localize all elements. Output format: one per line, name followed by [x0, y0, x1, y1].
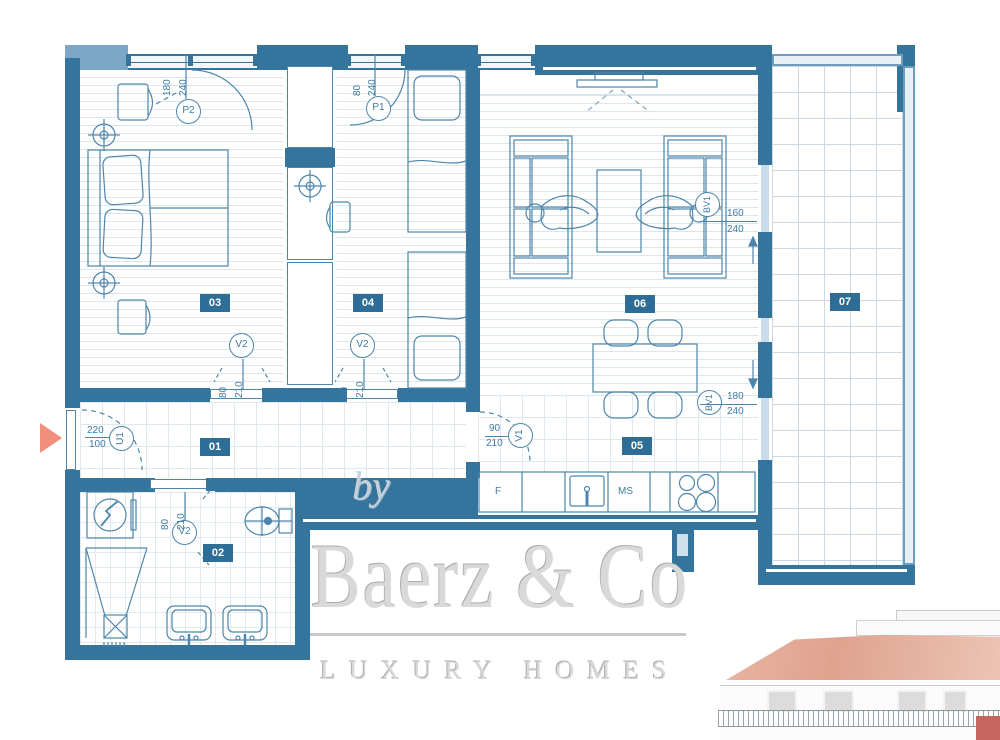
room-badge-06: 06 — [625, 295, 655, 313]
watermark-by: by — [352, 462, 390, 509]
room-badge-03: 03 — [200, 294, 230, 312]
dim-bv1b-h: 240 — [727, 406, 744, 418]
dining-chair — [648, 320, 682, 346]
tv-board — [577, 80, 657, 87]
dim-p1-w: 80 — [352, 85, 364, 96]
burner — [680, 476, 695, 491]
door-tag-v2-bed04: V2 — [350, 333, 375, 358]
building-red-wall — [976, 716, 1000, 740]
building-window — [897, 690, 927, 712]
chair — [118, 300, 146, 334]
dim-v1-bar — [485, 436, 509, 437]
tv-view-lines — [586, 90, 650, 112]
burner — [697, 493, 716, 512]
blanket-fold — [408, 161, 466, 163]
window-p2-swing — [192, 70, 252, 130]
ceiling-light-icon — [88, 119, 120, 151]
room-badge-07: 07 — [830, 293, 860, 311]
dim-v2a-w: 80 — [218, 387, 230, 398]
room-badge-01: 01 — [200, 438, 230, 456]
door-tag-bv1-living: BV1 — [695, 192, 720, 217]
dim-bv1a-w: 160 — [727, 208, 744, 220]
pillow — [103, 209, 143, 259]
dim-v2c-h: 210 — [176, 513, 188, 530]
dim-v2a-h: 210 — [234, 381, 246, 398]
blanket-fold — [408, 317, 466, 319]
washer-zigzag — [101, 501, 118, 526]
door-tag-u1-entrance: U1 — [109, 426, 134, 451]
dining-table — [593, 344, 697, 392]
dim-p1-h: 240 — [367, 79, 379, 96]
dim-v1-w: 90 — [489, 423, 500, 435]
building-balcony-railing — [718, 710, 1000, 727]
bidet — [245, 506, 292, 536]
room-badge-04: 04 — [353, 294, 383, 312]
ceiling-light-icon — [294, 170, 326, 202]
bed-blanket-lines — [149, 150, 228, 266]
kitchen-counter-art — [479, 472, 755, 512]
single-bed-1 — [408, 70, 466, 232]
coffee-table — [597, 170, 641, 252]
dining-chair — [604, 320, 638, 346]
sink-drain — [585, 487, 590, 492]
person-left — [526, 196, 598, 230]
window-tag-p2: P2 — [176, 99, 201, 124]
building-back-ridge-2 — [856, 620, 1000, 636]
building-roof — [726, 634, 1000, 680]
pillow — [414, 336, 460, 380]
v2b-dash — [335, 368, 391, 382]
dim-bv1b-bar — [700, 404, 757, 405]
bv1b-arrow-head — [749, 379, 757, 388]
dim-p2-h: 240 — [178, 79, 190, 96]
room-badge-05: 05 — [622, 437, 652, 455]
dresser — [118, 84, 148, 120]
dim-u1-bar — [85, 437, 110, 438]
bv1a-arrow-head — [749, 237, 757, 246]
pillow — [102, 155, 143, 206]
building-window — [767, 690, 797, 712]
dim-v2b-w: 80 — [339, 387, 351, 398]
door-tag-v1-kitchen: V1 — [508, 423, 533, 448]
bedroom-04-furniture — [327, 70, 467, 388]
shower — [86, 548, 147, 647]
burner — [679, 494, 696, 511]
building-elevation — [718, 598, 1000, 740]
dim-u1-h: 100 — [89, 439, 106, 451]
dining-chair — [648, 392, 682, 418]
dim-p2-w: 180 — [162, 79, 174, 96]
ms-unit-label: MS — [618, 486, 633, 497]
building-window — [943, 690, 967, 712]
living-room-furniture — [480, 73, 758, 418]
dim-v2c-w: 80 — [160, 519, 172, 530]
floor-plan-page: 01 02 03 04 05 06 07 P2 P1 V2 V2 V2 V1 U… — [0, 0, 1000, 740]
room-badge-02: 02 — [203, 544, 233, 562]
window-tag-p1: P1 — [366, 96, 391, 121]
entrance-arrow-icon — [40, 423, 62, 453]
tv-screen — [595, 73, 643, 80]
door-tag-v2-bed03: V2 — [229, 333, 254, 358]
watermark-tagline: LUXURY HOMES — [290, 656, 710, 686]
dim-v1-h: 210 — [486, 438, 503, 450]
dining-chair — [604, 392, 638, 418]
dim-bv1a-bar — [700, 221, 757, 222]
door-swings — [82, 54, 757, 565]
ceiling-light-icon — [88, 267, 120, 299]
burner — [698, 475, 715, 492]
sink-basin-1 — [167, 606, 211, 645]
building-window — [823, 690, 854, 712]
stool — [330, 202, 350, 232]
bathroom-fixtures — [86, 492, 292, 647]
pillow — [414, 76, 460, 120]
v2a-dash — [214, 368, 270, 382]
fridge-label: F — [495, 486, 501, 497]
watermark-brand: Baerz & Co — [298, 524, 703, 629]
dim-bv1b-w: 180 — [727, 391, 744, 403]
watermark-rule — [310, 633, 686, 636]
dim-bv1a-h: 240 — [727, 224, 744, 236]
door-tag-bv1-kitchen: BV1 — [697, 390, 722, 415]
single-bed-2 — [408, 252, 466, 388]
sink-basin-2 — [223, 606, 267, 645]
dresser-curve — [148, 89, 153, 116]
dim-u1-w: 220 — [87, 425, 104, 437]
dim-v2b-h: 210 — [355, 381, 367, 398]
